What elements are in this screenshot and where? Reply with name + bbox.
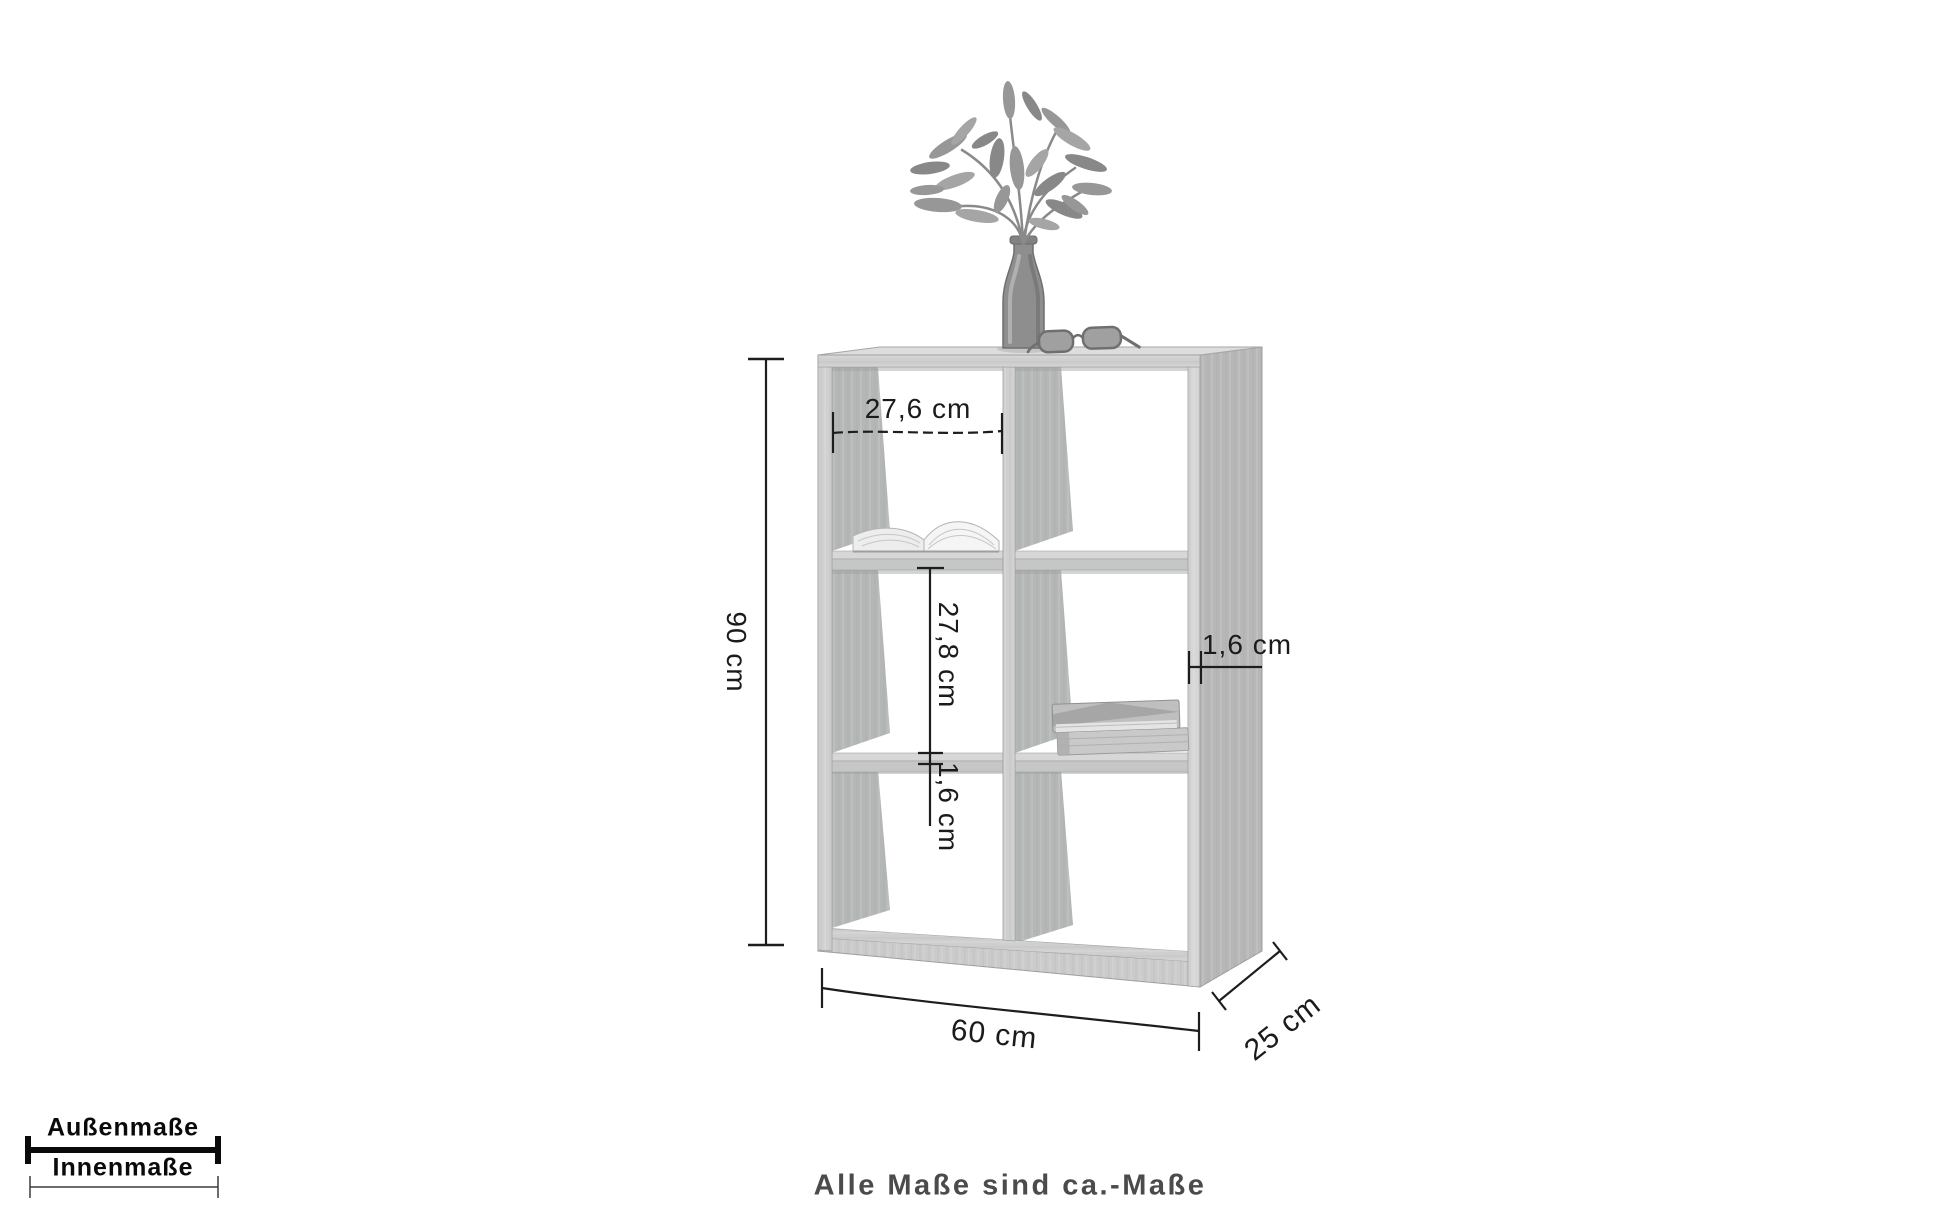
top-panel [818, 355, 1200, 367]
panel-thickness-dimension-label: 1,6 cm [1202, 629, 1292, 661]
height-dimension-line [748, 359, 784, 945]
center-divider [1003, 367, 1015, 941]
footnote: Alle Maße sind ca.-Maße [814, 1170, 1207, 1203]
legend-inner-label: Innenmaße [53, 1154, 194, 1183]
plant [909, 81, 1112, 243]
left-panel [818, 355, 832, 951]
product-dimension-diagram: 90 cm 27,6 cm 27,8 cm 1,6 cm 1,6 cm 60 c… [0, 0, 1946, 1210]
book-stack [1052, 700, 1189, 756]
inner-width-dimension-label: 27,6 cm [865, 393, 972, 425]
inner-height-dimension-label: 27,8 cm [932, 602, 964, 709]
shelf-thickness-dimension-label: 1,6 cm [932, 762, 964, 852]
height-dimension-label: 90 cm [720, 611, 752, 692]
legend-outer-label: Außenmaße [47, 1114, 199, 1143]
